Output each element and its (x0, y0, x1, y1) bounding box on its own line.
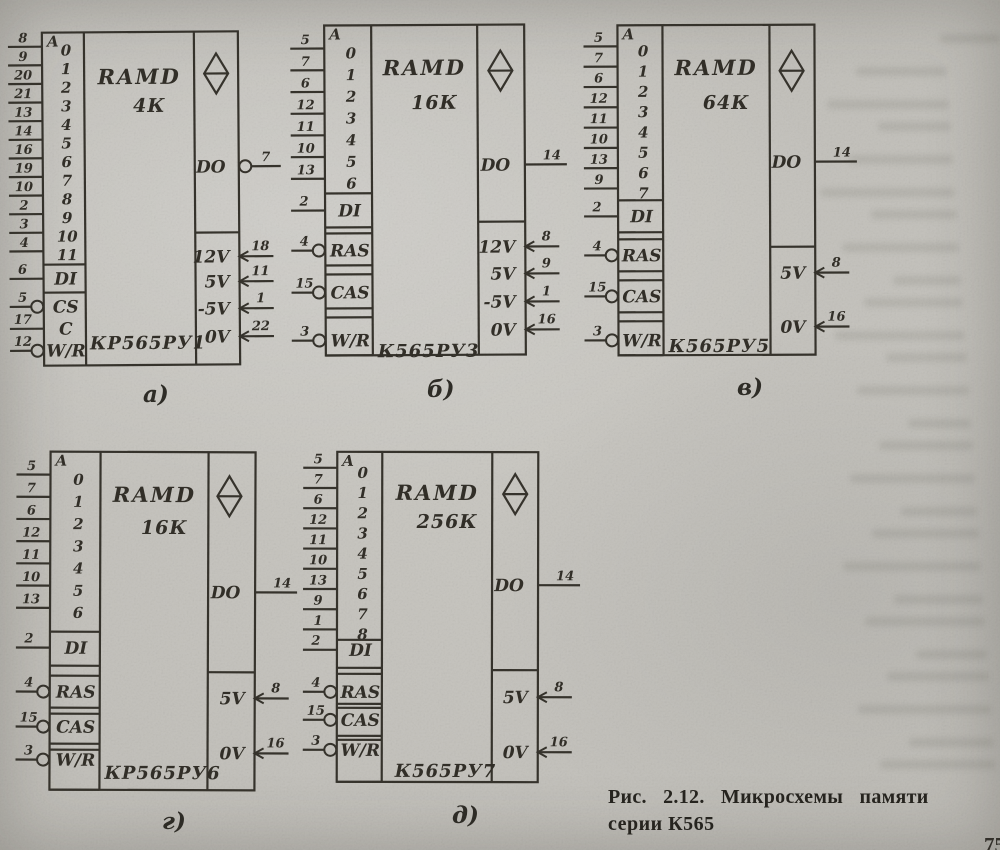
address-bus-label: A (45, 33, 59, 51)
figure-letter: д) (452, 802, 479, 829)
pin-number: 20 (13, 68, 32, 83)
pin-number: 14 (273, 576, 291, 591)
power-label: 5V (490, 265, 517, 285)
inversion-circle (313, 287, 325, 299)
inversion-circle (37, 686, 49, 698)
control-label: CS (53, 297, 79, 317)
pin-number: 17 (14, 313, 32, 328)
bleed-through-line (857, 386, 969, 395)
chip-type-label: RAMD (382, 55, 466, 80)
pin-number: 3 (593, 324, 602, 339)
page-number: 75 (984, 833, 1000, 850)
output-column-divider (769, 25, 770, 355)
bleed-through-line (886, 353, 967, 362)
data-output-label: DO (493, 576, 524, 596)
pin-number: 13 (22, 592, 40, 607)
pin-number: 15 (588, 280, 606, 295)
chip-part-number: КР565РУ6 (103, 763, 220, 784)
pin-number: 10 (15, 180, 33, 195)
inversion-circle (606, 334, 618, 346)
address-digit: 9 (62, 209, 73, 227)
address-digit: 5 (357, 565, 367, 583)
pin-number: 1 (313, 614, 322, 629)
bleed-through-line (820, 188, 955, 197)
pin-number: 2 (18, 199, 28, 214)
address-digit: 1 (357, 484, 367, 502)
pin-number: 12 (309, 513, 327, 528)
address-bus-label: A (327, 25, 341, 43)
bleed-through-line (880, 760, 995, 769)
inversion-circle (324, 714, 336, 726)
inversion-circle (37, 721, 49, 733)
inversion-circle (32, 345, 44, 357)
output-column-divider (477, 25, 479, 355)
control-label: RAS (340, 683, 381, 703)
pin-number: 10 (590, 132, 608, 147)
pin-number: 13 (590, 153, 608, 168)
address-digit: 4 (357, 545, 367, 563)
power-label: 5V (220, 689, 247, 709)
bleed-through-line (908, 419, 971, 428)
pin-number: 19 (15, 161, 33, 176)
caption-line1: Рис. 2.12. Микросхемы памяти (608, 784, 1000, 810)
address-bus-label: A (340, 452, 354, 470)
address-digit: 1 (346, 66, 357, 84)
address-digit: 7 (357, 605, 368, 623)
power-label: 0V (503, 743, 530, 763)
bleed-through-line (909, 738, 993, 747)
pin-number: 3 (311, 734, 320, 749)
data-output-label: DO (195, 157, 226, 177)
scanned-page: A8091202213134145166197108293104116DI5CS… (0, 0, 1000, 850)
address-digit: 5 (61, 134, 72, 152)
address-digit: 4 (61, 116, 72, 134)
address-digit: 5 (346, 153, 357, 171)
address-digit: 6 (346, 175, 357, 193)
control-label: CAS (341, 711, 380, 731)
control-label: W/R (331, 331, 371, 351)
pin-number: 5 (314, 452, 323, 467)
control-label: W/R (56, 751, 96, 771)
pin-number: 15 (307, 704, 325, 719)
address-bus-label: A (620, 25, 634, 43)
bleed-through-line (850, 474, 975, 483)
pin-number: 11 (297, 120, 315, 135)
power-label: 5V (780, 264, 807, 284)
pin-number: 16 (538, 312, 556, 327)
address-digit: 0 (61, 41, 72, 59)
chip-capacity-label: 64К (703, 92, 750, 114)
pin-number: 4 (593, 239, 602, 254)
address-digit: 6 (61, 153, 72, 171)
pin-number: 12 (22, 526, 40, 541)
address-digit: 1 (638, 63, 649, 81)
chip-type-label: RAMD (395, 480, 479, 505)
pin-number: 3 (20, 217, 29, 232)
address-digit: 2 (72, 515, 84, 533)
control-label: CAS (622, 287, 661, 307)
pin-number: 1 (256, 291, 265, 306)
pin-number: 2 (592, 200, 602, 215)
power-label: 0V (219, 744, 246, 764)
data-output-label: DO (480, 156, 511, 176)
figure-letter: в) (737, 374, 763, 401)
inversion-circle (313, 245, 325, 257)
output-column-divider (194, 32, 196, 365)
pin-number: 11 (309, 533, 327, 548)
chip-part-number: К565РУ3 (377, 341, 480, 363)
power-label: 12V (192, 247, 231, 267)
power-label: 0V (780, 318, 807, 338)
address-digit: 0 (73, 471, 84, 489)
bleed-through-line (865, 617, 985, 626)
control-label: W/R (46, 341, 86, 361)
pin-number: 14 (14, 124, 32, 139)
chip-К565РУ3: A5071621231141051362DI4RAS15CAS3W/RRAMD1… (290, 24, 568, 362)
pin-number: 16 (266, 736, 284, 751)
pin-number: 2 (298, 195, 308, 210)
address-digit: 1 (73, 493, 84, 511)
address-digit: 2 (356, 504, 367, 522)
control-label: RAS (55, 683, 96, 703)
bleed-through-line (893, 276, 961, 285)
pin-number: 15 (295, 277, 313, 292)
chip-К565РУ7: A50716212311410513697182DI4RAS15CAS3W/RR… (303, 452, 581, 782)
chip-part-number: К565РУ5 (668, 336, 771, 357)
pin-number: 3 (24, 744, 33, 759)
control-label: CAS (330, 283, 369, 303)
bleed-through-line (872, 529, 979, 538)
address-digit: 6 (638, 164, 649, 182)
control-label: W/R (341, 741, 380, 761)
pin-number: 9 (542, 256, 551, 271)
pin-number: 12 (296, 98, 314, 113)
pin-number: 10 (309, 553, 327, 568)
pin-number: 14 (543, 148, 561, 163)
bleed-through-line (916, 650, 987, 659)
pin-number: 11 (251, 264, 269, 279)
inversion-circle (606, 290, 618, 302)
bleed-through-line (843, 562, 981, 571)
address-digit: 7 (62, 172, 73, 190)
control-label: CAS (56, 718, 95, 738)
chip-capacity-label: 4К (133, 95, 166, 117)
chip-type-label: RAMD (112, 482, 196, 507)
inversion-circle (606, 249, 618, 261)
address-digit: 3 (346, 109, 357, 127)
bleed-through-line (856, 67, 947, 76)
pin-number: 11 (22, 548, 40, 563)
power-label: 12V (478, 238, 517, 258)
pin-number: 7 (594, 51, 603, 66)
data-output-label: DO (210, 583, 241, 603)
inversion-circle (239, 160, 251, 172)
address-digit: 3 (357, 524, 367, 542)
address-digit: 2 (345, 88, 357, 106)
chip-КР565РУ1: A8091202213134145166197108293104116DI5CS… (8, 30, 282, 366)
address-digit: 1 (61, 60, 72, 78)
chip-capacity-label: 16К (141, 517, 188, 539)
pin-number: 2 (310, 634, 320, 649)
pin-number: 5 (301, 33, 310, 48)
pin-number: 11 (590, 112, 608, 127)
bleed-through-line (879, 441, 973, 450)
pin-number: 16 (15, 143, 33, 158)
pin-number: 4 (24, 676, 33, 691)
pin-number: 6 (314, 493, 323, 508)
chip-К565РУ5: A507162123114105136972DI4RAS15CAS3W/RRAM… (583, 25, 857, 358)
control-label: DI (64, 639, 89, 659)
address-digit: 10 (57, 227, 79, 245)
address-digit: 2 (60, 79, 72, 97)
pin-number: 6 (18, 263, 27, 278)
power-label: 0V (205, 327, 232, 347)
chip-capacity-label: 16К (411, 92, 458, 114)
address-digit: 0 (358, 464, 369, 482)
schematic-diagram: A8091202213134145166197108293104116DI5CS… (0, 0, 1000, 850)
pin-number: 14 (556, 569, 574, 584)
output-column-divider (492, 452, 493, 782)
data-output-label: DO (771, 153, 802, 173)
pin-number: 10 (22, 570, 40, 585)
control-label: DI (337, 201, 362, 221)
pin-number: 5 (18, 291, 27, 306)
pin-number: 3 (300, 325, 309, 340)
pin-number: 8 (542, 229, 551, 244)
bleed-through-line (940, 34, 1000, 43)
pin-number: 12 (590, 92, 608, 107)
pin-number: 4 (311, 676, 320, 691)
pin-number: 13 (14, 106, 32, 121)
pin-number: 8 (271, 681, 280, 696)
address-digit: 2 (637, 83, 649, 101)
label-column-divider (99, 452, 100, 790)
power-label: 5V (204, 272, 231, 292)
pin-number: 7 (314, 472, 323, 487)
bleed-through-line (842, 243, 959, 252)
power-label: 0V (491, 321, 518, 341)
figure-letter: а) (143, 381, 169, 408)
address-digit: 3 (638, 103, 649, 121)
address-digit: 4 (346, 131, 357, 149)
control-label: DI (629, 207, 654, 227)
control-label: RAS (621, 246, 662, 266)
control-label: RAS (329, 241, 370, 261)
pin-number: 13 (309, 573, 327, 588)
pin-number: 4 (300, 235, 309, 250)
control-label: DI (53, 269, 78, 289)
chip-capacity-label: 256К (416, 511, 478, 533)
pin-number: 12 (14, 335, 32, 350)
figure-caption: Рис. 2.12. Микросхемы памяти серии К565 (608, 784, 1000, 837)
power-label: -5V (483, 293, 517, 313)
control-label: DI (348, 641, 373, 661)
chip-part-number: К565РУ7 (394, 761, 497, 782)
inversion-circle (313, 335, 325, 347)
address-digit: 6 (73, 604, 84, 622)
pin-number: 5 (594, 31, 603, 46)
chip-КР565РУ6: A5071621231141051362DI4RAS15CAS3W/RRAMD1… (15, 452, 297, 791)
label-column-divider (371, 25, 373, 355)
pin-number: 8 (554, 680, 563, 695)
inversion-circle (324, 686, 336, 698)
address-digit: 0 (638, 42, 649, 60)
pin-number: 4 (20, 236, 29, 251)
control-label: W/R (622, 331, 662, 351)
address-digit: 8 (62, 190, 73, 208)
pin-number: 7 (27, 481, 36, 496)
pin-number: 13 (297, 163, 315, 178)
pin-number: 2 (23, 632, 33, 647)
pin-number: 7 (261, 150, 270, 165)
address-digit: 0 (346, 44, 357, 62)
pin-number: 16 (827, 310, 845, 325)
bleed-through-line (887, 672, 989, 681)
power-label: 5V (503, 688, 530, 708)
pin-number: 5 (27, 459, 36, 474)
inversion-circle (31, 301, 43, 313)
power-label: -5V (198, 299, 232, 319)
control-label: C (59, 319, 73, 339)
bleed-through-line (827, 100, 949, 109)
output-column-divider (207, 452, 208, 790)
bleed-through-line (858, 705, 991, 714)
address-digit: 6 (357, 585, 368, 603)
label-column-divider (662, 25, 663, 355)
pin-number: 8 (832, 256, 841, 271)
bleed-through-line (894, 595, 983, 604)
pin-number: 22 (251, 319, 270, 334)
address-digit: 5 (638, 144, 649, 162)
inversion-circle (324, 744, 336, 756)
address-digit: 3 (61, 97, 72, 115)
bleed-through-line (864, 298, 963, 307)
bleed-through-line (901, 507, 977, 516)
pin-number: 6 (301, 77, 310, 92)
address-digit: 4 (73, 560, 84, 578)
figure-letter: б) (427, 376, 455, 403)
figure-letter: г) (162, 808, 186, 835)
pin-number: 18 (251, 239, 269, 254)
inversion-circle (37, 754, 49, 766)
address-digit: 11 (57, 246, 78, 264)
pin-number: 16 (550, 735, 568, 750)
pin-number: 9 (594, 173, 603, 188)
pin-number: 7 (301, 55, 310, 70)
chip-type-label: RAMD (673, 55, 757, 80)
pin-number: 9 (313, 594, 322, 609)
pin-number: 21 (13, 87, 32, 102)
address-digit: 4 (638, 123, 649, 141)
pin-number: 15 (20, 711, 38, 726)
address-bus-label: A (54, 452, 68, 470)
chip-type-label: RAMD (96, 64, 180, 90)
caption-line2: серии К565 (608, 811, 1000, 837)
label-column-divider (382, 452, 383, 782)
bleed-through-line (878, 122, 951, 131)
bleed-through-line (849, 155, 953, 164)
chip-part-number: КР565РУ1 (89, 333, 206, 355)
address-digit: 3 (73, 537, 84, 555)
label-column-divider (84, 32, 86, 365)
pin-number: 8 (18, 31, 27, 46)
bleed-through-line (835, 331, 965, 340)
pin-number: 9 (18, 50, 27, 65)
bleed-through-line (871, 210, 957, 219)
pin-number: 6 (594, 71, 603, 86)
pin-number: 1 (542, 284, 551, 299)
pin-number: 10 (297, 142, 315, 157)
address-digit: 5 (73, 582, 84, 600)
pin-number: 6 (27, 503, 36, 518)
